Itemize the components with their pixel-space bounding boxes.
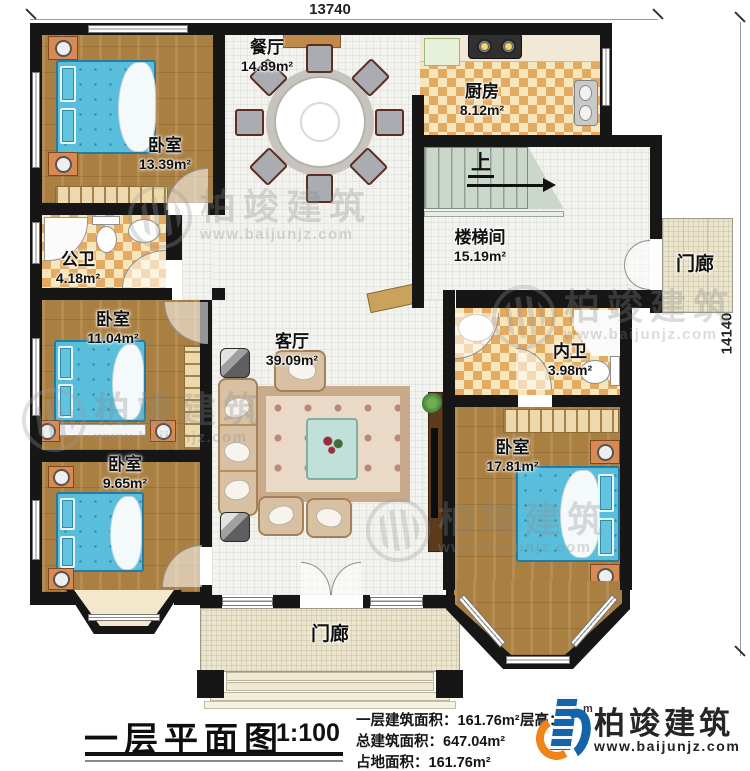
cutting-board: [424, 38, 460, 66]
dining-chair: [375, 109, 404, 136]
toilet-bowl: [96, 226, 117, 253]
pillow: [60, 108, 76, 144]
stairs-landing: [424, 211, 564, 217]
tv: [431, 428, 438, 518]
stat-row: 一层建筑面积：161.76m²: [356, 709, 520, 730]
wall: [30, 288, 172, 300]
window: [32, 338, 40, 416]
window: [370, 597, 423, 606]
wall: [30, 203, 168, 215]
floorplan-canvas: 上: [0, 0, 750, 771]
pillow: [60, 536, 75, 568]
room-label: 卧室 11.04m²: [63, 310, 163, 346]
window: [32, 500, 40, 560]
stairs-arrow-line: [467, 184, 545, 187]
window: [222, 597, 273, 606]
wall: [650, 290, 662, 313]
room-label: 餐厅 14.89m²: [217, 38, 317, 74]
scale-label: 1:100: [276, 719, 340, 748]
wall: [443, 290, 455, 590]
wall: [620, 290, 632, 590]
wall: [412, 95, 424, 147]
stairs-arrow-head: [543, 178, 556, 192]
bay-window-glass: [506, 656, 570, 664]
room-label: 内卫 3.98m²: [520, 342, 620, 378]
wall: [423, 595, 455, 608]
dining-table-center: [300, 102, 340, 142]
pillow: [60, 66, 76, 102]
nightstand: [48, 568, 74, 590]
lamp-icon: [597, 444, 614, 461]
room-label: 楼梯间 15.19m²: [420, 228, 540, 264]
nightstand: [48, 36, 78, 60]
room-label: 门廊: [290, 624, 370, 646]
room-label: 门廊: [655, 254, 735, 276]
bed-sheet: [112, 344, 144, 420]
wall: [30, 592, 76, 605]
lamp-icon: [53, 571, 70, 588]
porch-step: [204, 701, 456, 709]
dimension-line-top: [30, 19, 658, 20]
porch-column: [436, 670, 463, 698]
wall: [166, 215, 182, 260]
pillow: [598, 474, 614, 512]
nightstand: [590, 440, 620, 464]
lamp-icon: [53, 469, 70, 486]
pillow: [60, 498, 75, 530]
toilet-tank: [92, 216, 120, 225]
wall: [412, 135, 662, 147]
porch-step: [226, 672, 434, 681]
coffee-table: [306, 418, 358, 480]
pillow: [58, 384, 73, 418]
room-label: 公卫 4.18m²: [28, 250, 128, 286]
nightstand: [48, 152, 78, 176]
dimension-height-label: 14140: [719, 299, 736, 369]
floor-height-unit: m: [583, 703, 593, 715]
window: [602, 48, 610, 106]
wall: [208, 203, 225, 215]
wall: [273, 595, 300, 608]
room-label: 厨房 8.12m²: [432, 82, 532, 118]
dimension-tick: [25, 8, 36, 19]
pillow: [58, 346, 73, 380]
sink-basin: [579, 105, 592, 121]
stat-row: 占地面积：161.76m²: [356, 751, 491, 771]
dimension-tick: [652, 8, 663, 19]
porch-column: [197, 670, 224, 698]
nightstand: [150, 420, 176, 442]
stairs-up-label: 上: [468, 146, 494, 178]
porch-step: [210, 692, 450, 701]
bed-sheet: [110, 496, 142, 570]
table-flowers: [320, 432, 346, 458]
wall: [455, 395, 518, 407]
porch-step: [226, 682, 434, 691]
room-label: 客厅 39.09m²: [242, 332, 342, 368]
lamp-icon: [155, 423, 172, 440]
lamp-icon: [55, 40, 72, 57]
wardrobe: [184, 346, 201, 450]
lamp-icon: [55, 156, 72, 173]
bay-window-glass: [88, 614, 160, 621]
burner: [477, 39, 492, 54]
dimension-tick: [734, 11, 745, 22]
burner: [501, 39, 516, 54]
washbasin: [128, 219, 160, 243]
wardrobe: [503, 409, 619, 433]
wall: [363, 595, 370, 608]
window: [32, 72, 40, 168]
bed-bench: [56, 424, 146, 436]
nightstand: [48, 466, 74, 488]
bed-sheet: [560, 470, 600, 558]
company-logo-icon: [536, 690, 592, 768]
pillow: [598, 518, 614, 556]
hall-nook-floor: [182, 215, 213, 300]
wall: [650, 147, 662, 239]
window: [88, 25, 188, 33]
stove: [468, 33, 522, 59]
stat-row: 总建筑面积：647.04m²: [356, 730, 505, 751]
dining-chair: [235, 109, 264, 136]
dimension-width-label: 13740: [280, 1, 380, 18]
wall: [200, 595, 222, 608]
kitchen-sink: [574, 80, 598, 126]
company-website: www.baijunjz.com: [594, 738, 740, 754]
room-label: 卧室 17.81m²: [460, 438, 565, 474]
sink-basin: [579, 85, 592, 101]
room-label: 卧室 9.65m²: [75, 455, 175, 491]
title-underline: [85, 752, 343, 756]
wall: [212, 288, 225, 300]
dimension-line-right: [740, 22, 741, 656]
dining-chair: [306, 174, 333, 203]
company-name: 柏竣建筑: [594, 698, 734, 743]
wall: [552, 395, 632, 407]
entry-door-gap: [300, 595, 363, 608]
side-table: [220, 512, 250, 542]
title-underline-thin: [85, 760, 343, 762]
room-label: 卧室 13.39m²: [115, 136, 215, 172]
